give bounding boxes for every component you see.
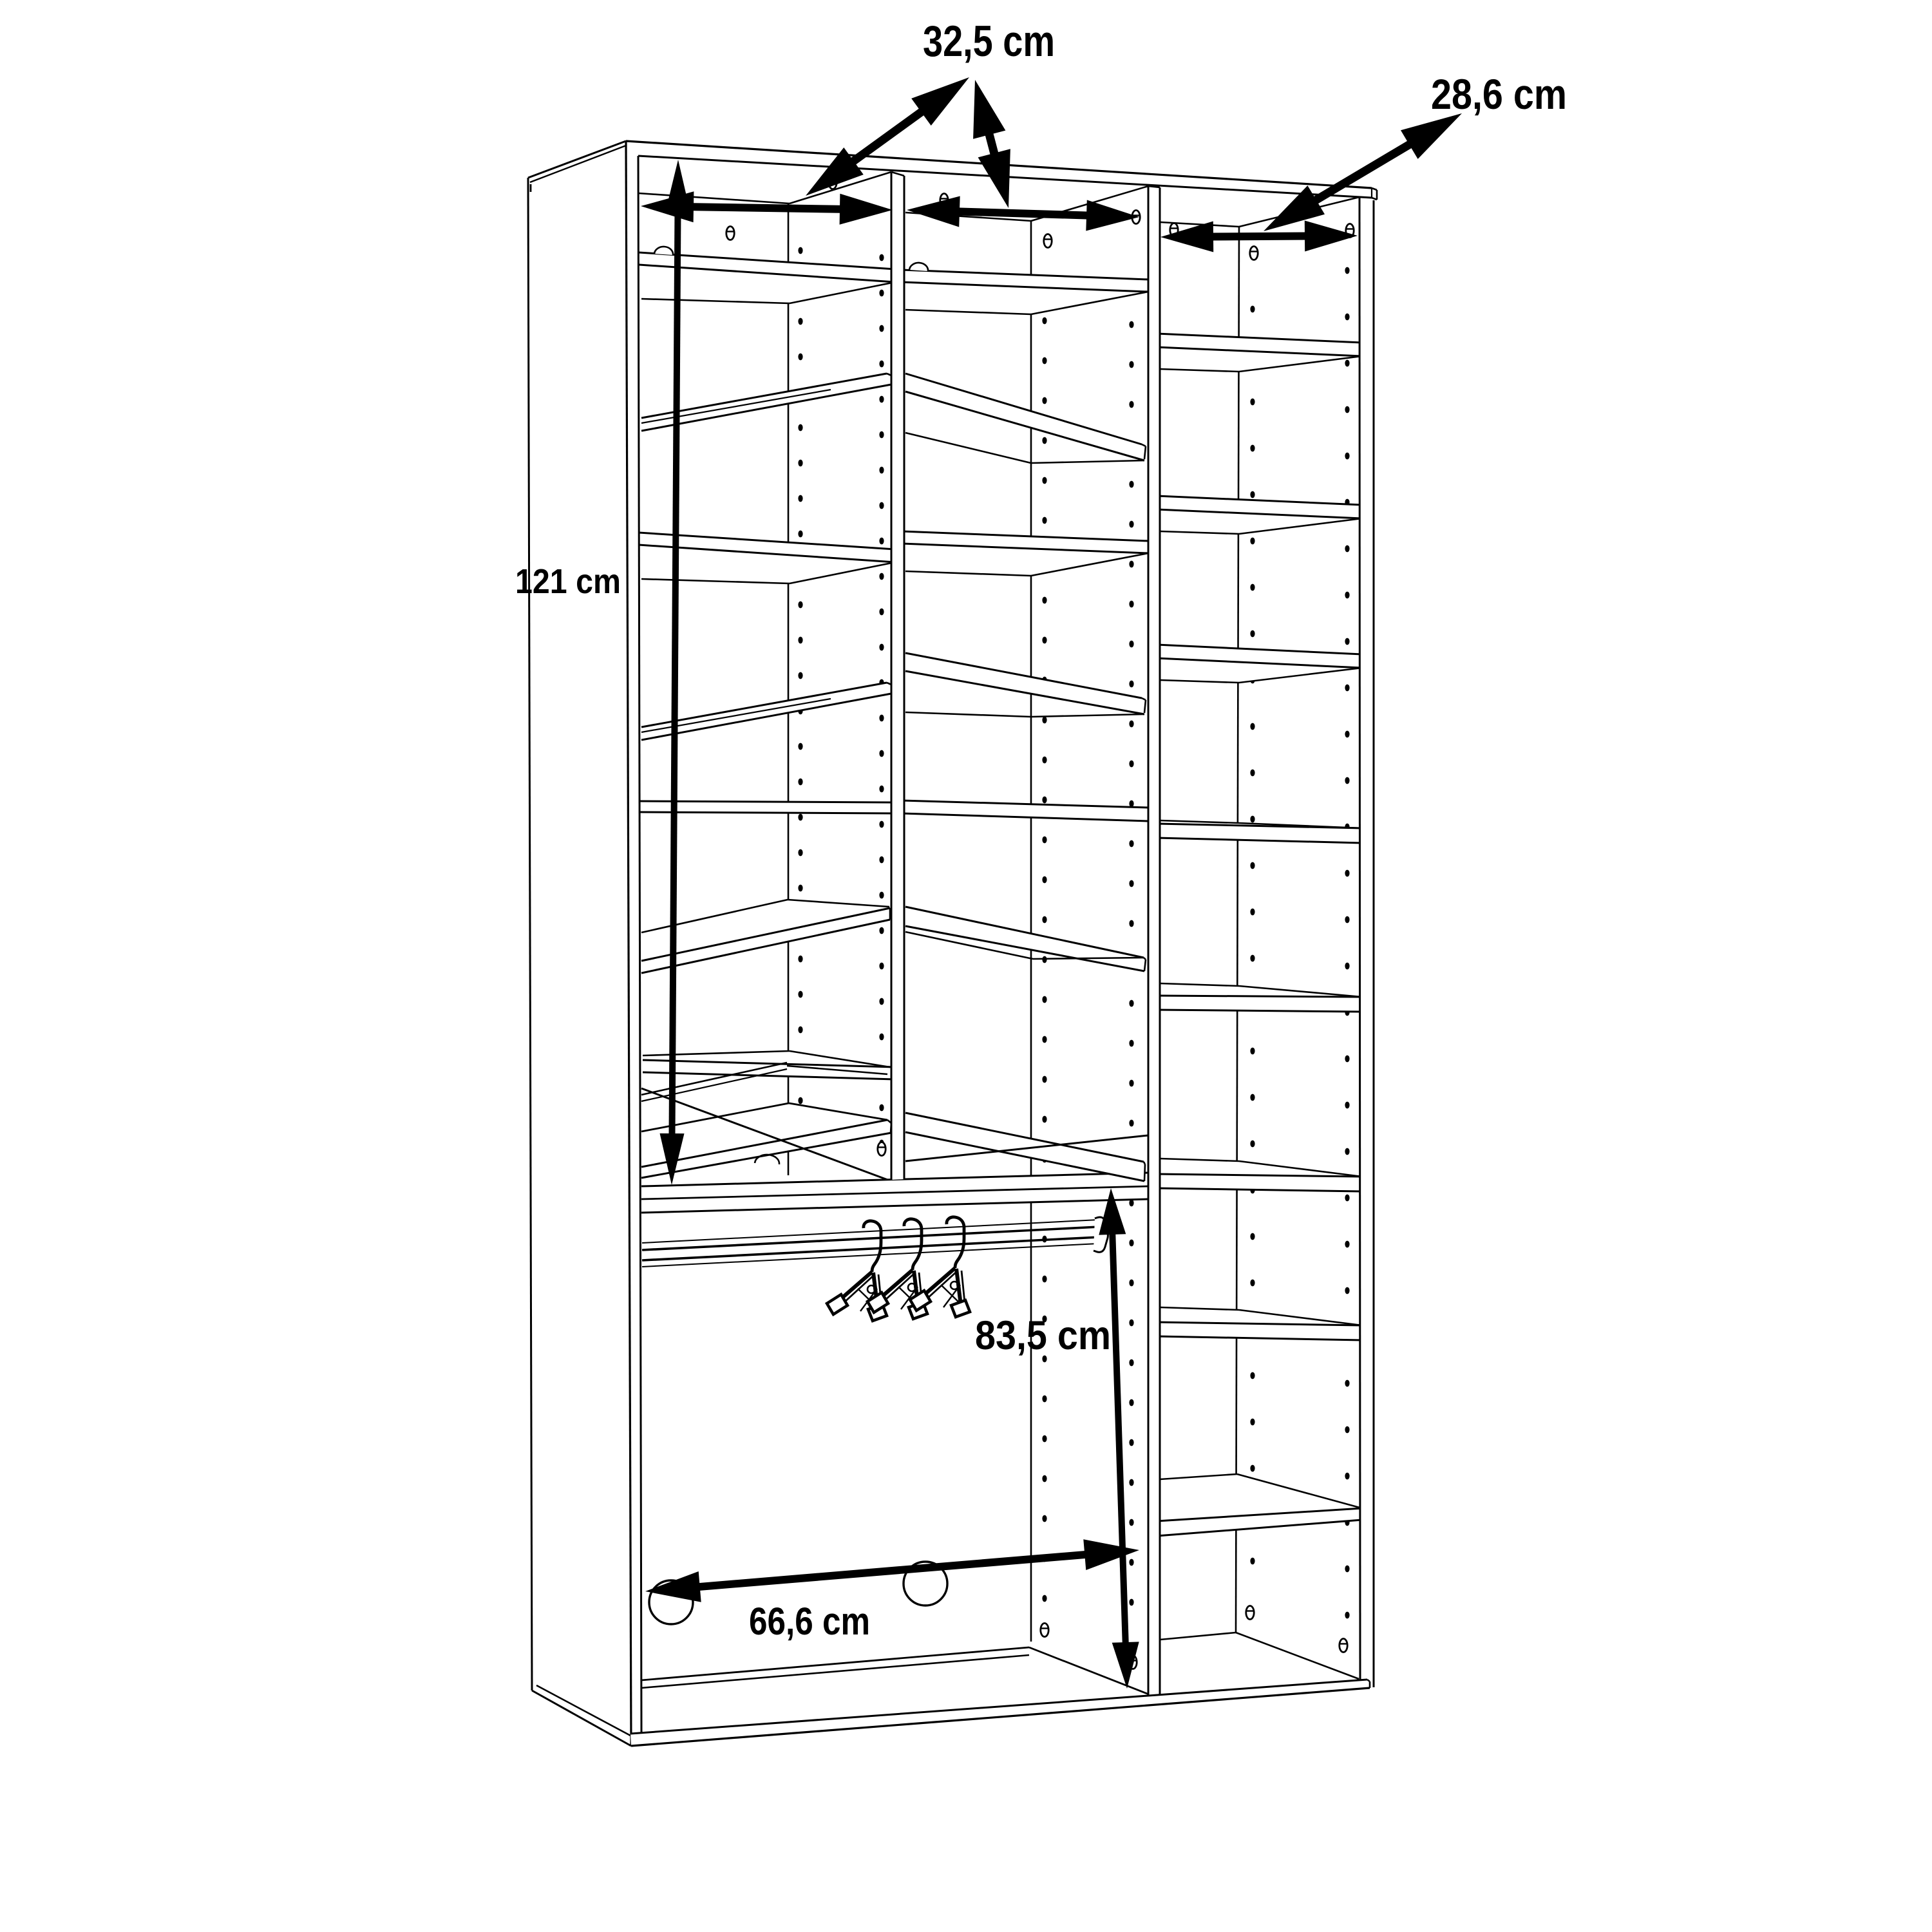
svg-text:66,6 cm: 66,6 cm [749,1600,870,1643]
svg-text:32,5 cm: 32,5 cm [923,17,1055,66]
svg-text:121 cm: 121 cm [515,562,621,601]
svg-text:83,5 cm: 83,5 cm [975,1313,1111,1358]
svg-text:28,6 cm: 28,6 cm [1431,70,1567,118]
